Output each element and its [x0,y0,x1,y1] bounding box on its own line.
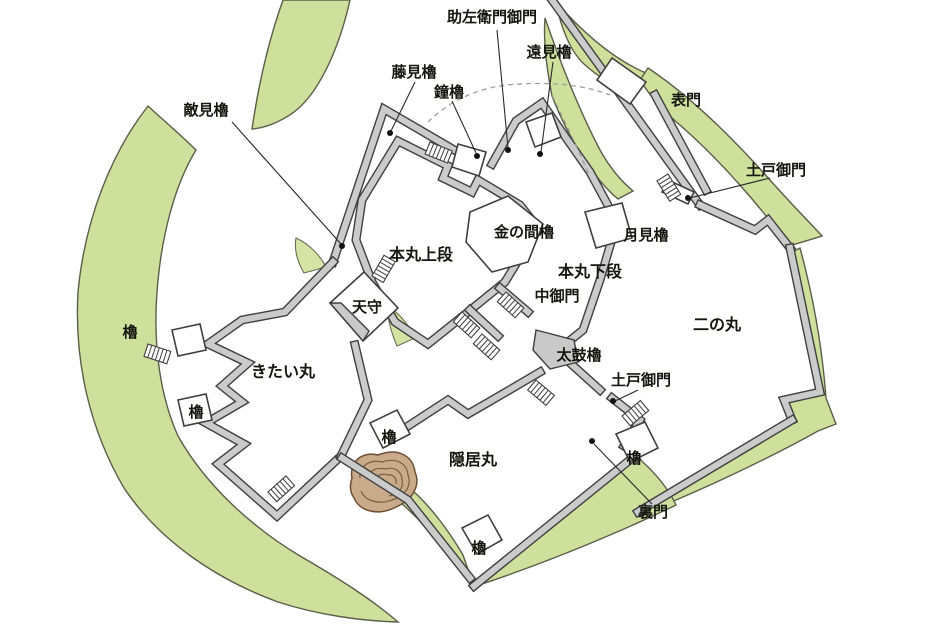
label-yagura-left-lower: 櫓 [188,403,203,421]
yagura-left-upper-box [172,324,206,356]
label-kitai-maru: きたい丸 [251,362,316,381]
kane-yagura-box [452,144,486,176]
green-top-left-band [252,0,350,129]
label-kane-yagura: 鐘櫓 [434,83,464,101]
label-ura-mon: 裏門 [637,503,668,521]
castle-map-page: 助左衛門御門 遠見櫓 藤見櫓 鐘櫓 敵見櫓 表門 土戸御門 金の間櫓 月見櫓 本… [0,0,930,636]
green-bottom-right-wedge [476,456,676,586]
label-tekimi-yagura: 敵見櫓 [183,101,228,119]
label-honmaru-joudan: 本丸上段 [389,245,454,264]
label-yagura-inkyo-s: 櫓 [471,539,486,557]
label-fujimi-yagura: 藤見櫓 [391,63,436,81]
label-tsukimi-yagura: 月見櫓 [622,226,668,244]
label-yagura-left-upper: 櫓 [122,323,137,341]
label-taiko-yagura: 太鼓櫓 [556,346,601,364]
green-left-crescent [77,106,398,622]
label-ninomaru: 二の丸 [693,315,742,334]
label-todo-gomon-lower: 土戸御門 [611,371,671,389]
label-sukezaemon-gomon: 助左衛門御門 [447,8,537,26]
label-todo-gomon-upper: 土戸御門 [746,161,806,179]
label-tenshu: 天守 [352,298,382,316]
label-yagura-ninomaru-s: 櫓 [626,449,641,467]
label-honmaru-gedan: 本丸下段 [558,262,623,281]
label-inkyo-maru: 隠居丸 [449,450,498,469]
castle-map: 助左衛門御門 遠見櫓 藤見櫓 鐘櫓 敵見櫓 表門 土戸御門 金の間櫓 月見櫓 本… [0,0,930,636]
label-tomi-yagura: 遠見櫓 [526,43,571,61]
label-kin-no-ma-yagura: 金の間櫓 [493,223,554,241]
label-omote-mon: 表門 [671,91,701,109]
label-naka-gomon: 中御門 [534,287,579,305]
label-yagura-inkyo-nw: 櫓 [381,428,396,446]
